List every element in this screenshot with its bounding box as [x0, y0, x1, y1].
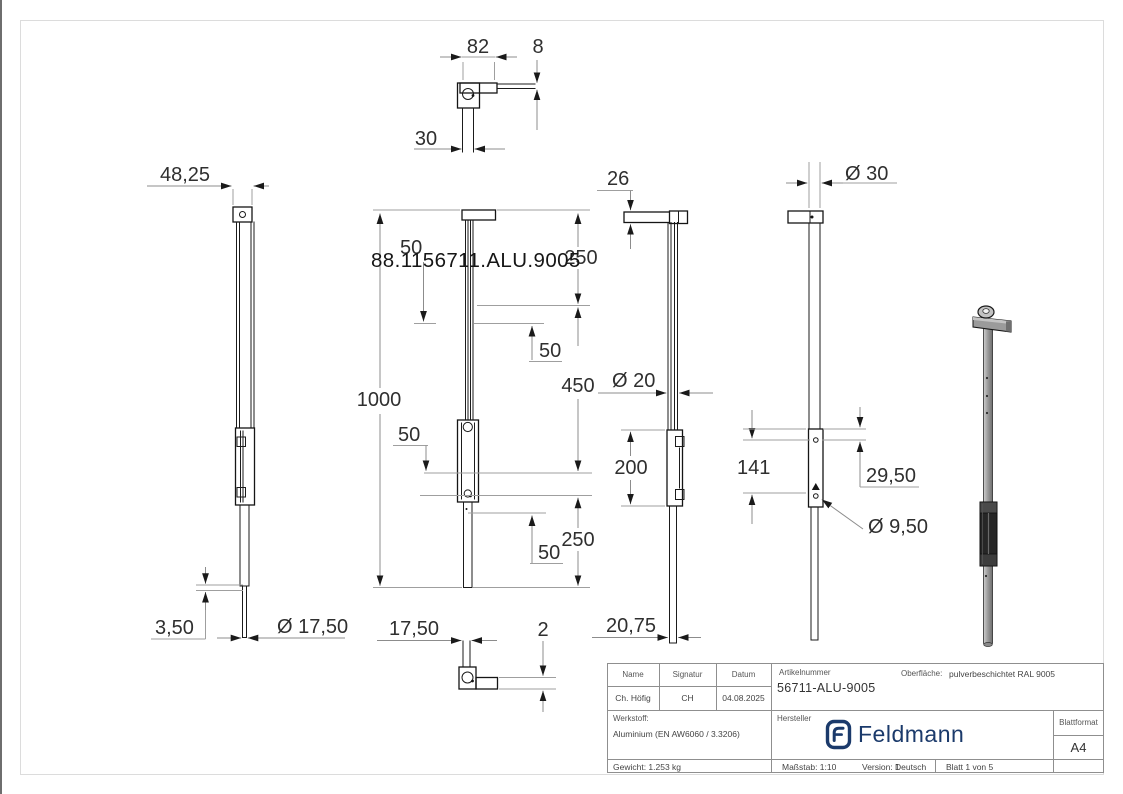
view-3d-render — [973, 306, 1011, 647]
tb-line — [771, 663, 772, 773]
dim-29-50: 29,50 — [866, 465, 916, 487]
dim-dia-17-50: Ø 17,50 — [277, 616, 348, 638]
dim-48-25: 48,25 — [160, 164, 210, 186]
dim-dia-20: Ø 20 — [612, 370, 655, 392]
tb-blattformat-label: Blattformat — [1053, 710, 1104, 735]
view-right: Ø 30 141 29,50 Ø 9,50 — [737, 162, 928, 640]
dim-8: 8 — [532, 36, 543, 58]
tb-blattformat-value: A4 — [1053, 735, 1104, 759]
tb-border — [607, 772, 1104, 773]
tb-line — [935, 759, 936, 773]
tb-sprache: Deutsch — [895, 762, 926, 772]
view-left: 48,25 3,50 Ø 17,50 — [147, 164, 348, 639]
title-block: Name Signatur Datum Ch. Höfig CH 04.08.2… — [607, 663, 1104, 773]
view-top-detail: 82 8 30 — [414, 36, 544, 152]
view-middle: 50 250 1000 50 450 50 250 50 88.1156711.… — [357, 210, 598, 588]
tb-signatur-label: Signatur — [659, 663, 716, 686]
tb-line — [607, 759, 1104, 760]
tb-artikelnummer-label: Artikelnummer — [779, 668, 831, 677]
tb-oberflaeche-value: pulverbeschichtet RAL 9005 — [949, 669, 1055, 679]
dim-2: 2 — [537, 619, 548, 641]
tb-blatt: Blatt 1 von 5 — [946, 762, 993, 772]
dim-17-50: 17,50 — [389, 618, 439, 640]
dim-20-75: 20,75 — [606, 615, 656, 637]
tb-hersteller-label: Hersteller — [777, 714, 811, 723]
tb-gewicht: Gewicht: 1.253 kg — [613, 762, 681, 772]
dim-141: 141 — [737, 457, 770, 479]
dim-200: 200 — [614, 457, 647, 479]
dim-50-upper: 50 — [539, 340, 561, 362]
tb-werkstoff-label: Werkstoff: — [613, 714, 649, 723]
view-bottom-detail: 17,50 2 — [377, 618, 556, 712]
feldmann-logo: Feldmann — [825, 717, 964, 751]
dim-dia-30: Ø 30 — [845, 163, 888, 185]
feldmann-logo-icon — [825, 719, 852, 750]
tb-datum-value: 04.08.2025 — [716, 686, 771, 710]
tb-signatur-value: CH — [659, 686, 716, 710]
feldmann-wordmark: Feldmann — [858, 721, 964, 748]
dim-50-lower: 50 — [538, 542, 560, 564]
dim-1000: 1000 — [357, 389, 402, 411]
tb-artikelnummer-value: 56711-ALU-9005 — [777, 681, 875, 695]
dim-450: 450 — [561, 375, 594, 397]
view-right-mid: 26 Ø 20 200 20,75 — [592, 168, 713, 643]
dim-82: 82 — [467, 36, 489, 58]
tb-oberflaeche-label: Oberfläche: — [901, 669, 942, 678]
dim-26: 26 — [607, 168, 629, 190]
tb-line — [607, 710, 1104, 711]
dim-3-50: 3,50 — [155, 617, 194, 639]
dim-30: 30 — [415, 128, 437, 150]
dim-dia-9-50: Ø 9,50 — [868, 516, 928, 538]
drawing-sheet: 82 8 30 — [0, 0, 1123, 794]
dim-50-left: 50 — [398, 424, 420, 446]
tb-datum-label: Datum — [716, 663, 771, 686]
part-number-watermark: 88.1156711.ALU.9005 — [371, 249, 581, 272]
tb-name-label: Name — [607, 663, 659, 686]
tb-massstab: Maßstab: 1:10 — [782, 762, 836, 772]
tb-name-value: Ch. Höfig — [607, 686, 659, 710]
tb-werkstoff-value: Aluminium (EN AW6060 / 3.3206) — [613, 729, 740, 739]
dim-250-bottom: 250 — [561, 529, 594, 551]
